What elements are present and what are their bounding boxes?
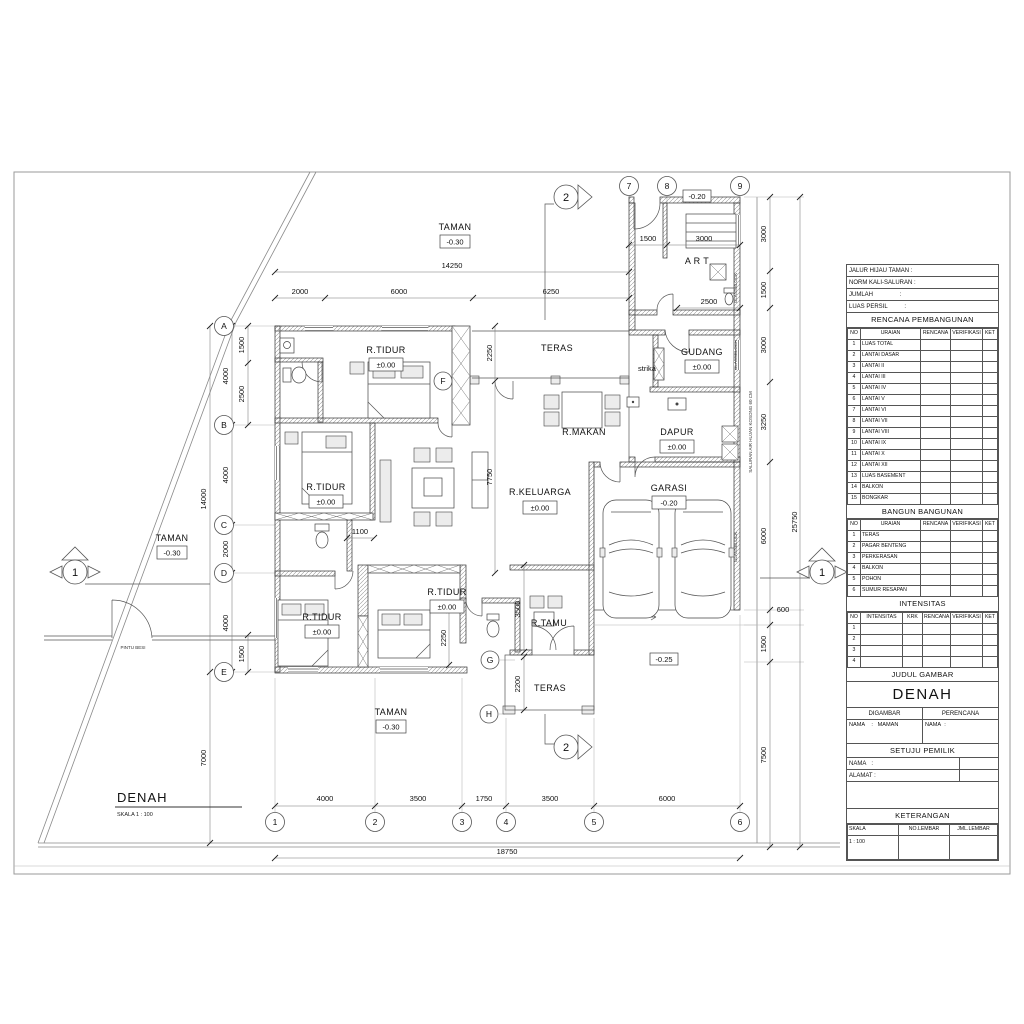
col-header: URAIAN [861,520,921,531]
col-header: URAIAN [861,328,921,339]
table-row: 1LUAS TOTAL [848,339,998,350]
table-row: 6LANTAI V [848,394,998,405]
col-header: JML.LEMBAR [950,824,998,835]
grid-row: A [221,321,227,331]
skala-value: 1 : 100 [848,835,899,860]
dining-set [544,392,620,428]
keterangan-title: KETERANGAN [847,809,998,824]
dim-label: 3500 [513,601,522,618]
grid-row: H [486,709,492,719]
room-label-rtamu: R.TAMU [531,618,567,628]
setuju-nama: NAMA : [847,758,960,769]
car [600,500,662,618]
col-header: RENCANA [921,520,951,531]
grid-row: E [221,667,227,677]
grid-row: D [221,568,227,578]
table-row: 3 [848,645,998,656]
dim-label: 600 [777,605,790,614]
col-header: NO [848,612,861,623]
grid-col: 9 [738,181,743,191]
dim-label: 4000 [221,368,230,385]
drawing-scale-text: SKALA 1 : 100 [117,812,153,818]
table-row: 7LANTAI VI [848,405,998,416]
col-header: KET [983,612,998,623]
table-row: 9LANTAI VIII [848,427,998,438]
col-header: INTENSITAS [861,612,903,623]
dim-label: 3000 [759,337,768,354]
col-header: KET [983,520,998,531]
room-label-taman-top: TAMAN [439,222,472,232]
dim-label: 4000 [221,615,230,632]
bangun-title: BANGUN BANGUNAN [847,505,998,520]
level-label: -0.30 [382,723,399,732]
level-label: ±0.00 [377,361,396,370]
level-label: -0.25 [655,655,672,664]
rencana-table: NO URAIAN RENCANA VERIFIKASI KET 1LUAS T… [847,328,998,505]
grid-row: B [221,420,227,430]
dim-label: 1100 [352,527,368,536]
dim-label: 3000 [759,226,768,243]
table-row: 12LANTAI XII [848,460,998,471]
dim-label: 1500 [759,282,768,299]
table-row: 2PAGAR BENTENG [848,542,998,553]
perencana-header: PERENCANA [923,708,998,719]
info-line: NORM KALI-SALURAN : [847,277,998,289]
rencana-title: RENCANA PEMBANGUNAN [847,313,998,328]
info-line: LUAS PERSIL : [847,301,998,313]
level-label: ±0.00 [693,363,712,372]
digambar-nama: NAMA : MAMAN [847,720,923,743]
level-label: ±0.00 [668,443,687,452]
toilet [283,367,306,383]
toilet [315,524,329,548]
col-header: NO [848,328,861,339]
grid-col: 1 [273,817,278,827]
level-label: -0.20 [688,192,705,201]
dim-label: 2000 [221,541,230,558]
table-row: 6SUMUR RESAPAN [848,586,998,597]
dim-label: 4000 [221,467,230,484]
digambar-header: DIGAMBAR [847,708,923,719]
section-label: 2 [563,742,569,754]
dim-label: 2200 [513,676,522,693]
table-row: 10LANTAI IX [848,438,998,449]
level-label: ±0.00 [438,603,457,612]
col-header: KET [983,328,998,339]
dim-label: 1500 [237,646,246,663]
col-header: SKALA [848,824,899,835]
drawing-sheet: 14250 2000 6000 6250 1500 3000 2500 4000… [0,0,1024,1024]
dim-label: 2500 [701,297,718,306]
sofa-set [380,448,488,526]
section-label: 1 [72,567,78,579]
judul-gambar-title: JUDUL GAMBAR [847,668,998,683]
table-row: 5POHON [848,575,998,586]
dim-label: 1750 [476,794,493,803]
level-label: -0.30 [446,238,463,247]
toilet [487,614,499,637]
level-label: ±0.00 [313,628,332,637]
room-label-rtidur: R.TIDUR [306,482,345,492]
dim-label: 7750 [485,469,494,486]
dim-label: 7000 [199,750,208,767]
room-label-teras-bottom: TERAS [534,683,566,693]
table-row: 14BALKON [848,482,998,493]
table-row: 2LANTAI DASAR [848,350,998,361]
intensitas-title: INTENSITAS [847,597,998,612]
setuju-alamat: ALAMAT : [847,770,960,781]
grid-row: F [440,376,445,386]
room-label-rtidur: R.TIDUR [302,612,341,622]
note-glassblock: GLASSBLOCK [733,273,738,303]
perencana-nama: NAMA : [923,720,998,743]
dim-label: 6000 [391,287,408,296]
room-label-art: A R T [685,256,709,266]
section-label: 1 [819,567,825,579]
room-label-gudang: GUDANG [681,347,723,357]
table-row: 4LANTAI III [848,372,998,383]
table-row: 4 [848,656,998,667]
table-row: 13LUAS BASEMENT [848,471,998,482]
dim-label: 3500 [542,794,559,803]
room-label-rtidur: R.TIDUR [427,587,466,597]
grid-col: 4 [504,817,509,827]
judul-gambar-value: DENAH [847,682,998,708]
dim-label: 6000 [759,528,768,545]
dim-label: 2250 [439,630,448,647]
room-label-rkeluarga: R.KELUARGA [509,487,571,497]
title-block: JALUR HIJAU TAMAN : NORM KALI-SALURAN : … [846,264,999,861]
table-row: 11LANTAI X [848,449,998,460]
washbasin [280,338,294,353]
room-label-strika: strika [638,364,657,373]
grid-row: C [221,520,227,530]
bangun-table: NO URAIAN RENCANA VERIFIKASI KET 1TERAS … [847,519,998,597]
grid-col: 7 [627,181,632,191]
level-label: -0.30 [163,549,180,558]
empty-box [847,782,998,809]
setuju-pemilik-title: SETUJU PEMILIK [847,744,998,759]
grid-col: 3 [460,817,465,827]
table-row: 4BALKON [848,564,998,575]
note-glassblock: GLASSBLOCK [733,340,738,370]
dim-label: 2250 [485,345,494,362]
note-pintu-besi: PINTU BESI [120,645,145,650]
dim-label: 25750 [790,512,799,533]
col-header: NO.LEMBAR [899,824,950,835]
room-label-dapur: DAPUR [660,427,694,437]
table-row: 5LANTAI IV [848,383,998,394]
dim-label: 3250 [759,414,768,431]
table-row: 3LANTAI II [848,361,998,372]
drawing-title-text: DENAH [117,790,168,805]
level-label: ±0.00 [531,504,550,513]
dim-label: 2500 [237,386,246,403]
grid-col: 5 [592,817,597,827]
intensitas-table: NO INTENSITAS KRK RENCANA VERIFIKASI KET… [847,612,998,668]
dim-label: 7500 [759,747,768,764]
level-label: ±0.00 [317,498,336,507]
table-row: 15BONGKAR [848,493,998,504]
col-header: KRK [903,612,923,623]
grid-col: 2 [373,817,378,827]
info-line: JALUR HIJAU TAMAN : [847,265,998,277]
dim-label: 4000 [317,794,334,803]
grid-row: G [487,655,494,665]
table-row: 1TERAS [848,531,998,542]
dim-label: 2000 [292,287,309,296]
room-label-rmakan: R.MAKAN [562,427,606,437]
col-header: VERIFIKASI [951,520,983,531]
dim-label: 1500 [237,337,246,354]
room-label-garasi: GARASI [651,483,687,493]
bed [378,610,430,658]
col-header: RENCANA [921,328,951,339]
dim-label: 6000 [659,794,676,803]
keterangan-table: SKALA NO.LEMBAR JML.LEMBAR 1 : 100 [847,824,998,861]
dim-label: 3000 [696,234,713,243]
room-label-teras-top: TERAS [541,343,573,353]
col-header: VERIFIKASI [951,328,983,339]
dim-label: 3500 [410,794,427,803]
grid-col: 6 [738,817,743,827]
bed [285,432,352,504]
col-header: NO [848,520,861,531]
room-label-taman-bottom: TAMAN [375,707,408,717]
dim-label: 14250 [442,261,463,270]
table-row: 1 : 100 [848,835,998,860]
table-row: 2 [848,634,998,645]
col-header: RENCANA [923,612,951,623]
dim-label: 1500 [640,234,657,243]
table-row: 1 [848,623,998,634]
table-row: 3PERKERASAN [848,553,998,564]
col-header: VERIFIKASI [951,612,983,623]
note-saluran: SALURAN AIR HUJAN KOSONG 60 CM [748,391,753,473]
dim-label: 1500 [759,636,768,653]
note-glassblock: GLASSBLOCK [733,532,738,562]
dim-label: 18750 [497,847,518,856]
level-label: -0.20 [660,499,677,508]
dim-label: 14000 [199,489,208,510]
grid-col: 8 [665,181,670,191]
room-label-rtidur: R.TIDUR [366,345,405,355]
section-label: 2 [563,192,569,204]
drawing-title: DENAH SKALA 1 : 100 [115,790,242,818]
car [672,500,734,618]
info-line: JUMLAH : [847,289,998,301]
room-label-taman-left: TAMAN [156,533,189,543]
table-row: 8LANTAI VII [848,416,998,427]
